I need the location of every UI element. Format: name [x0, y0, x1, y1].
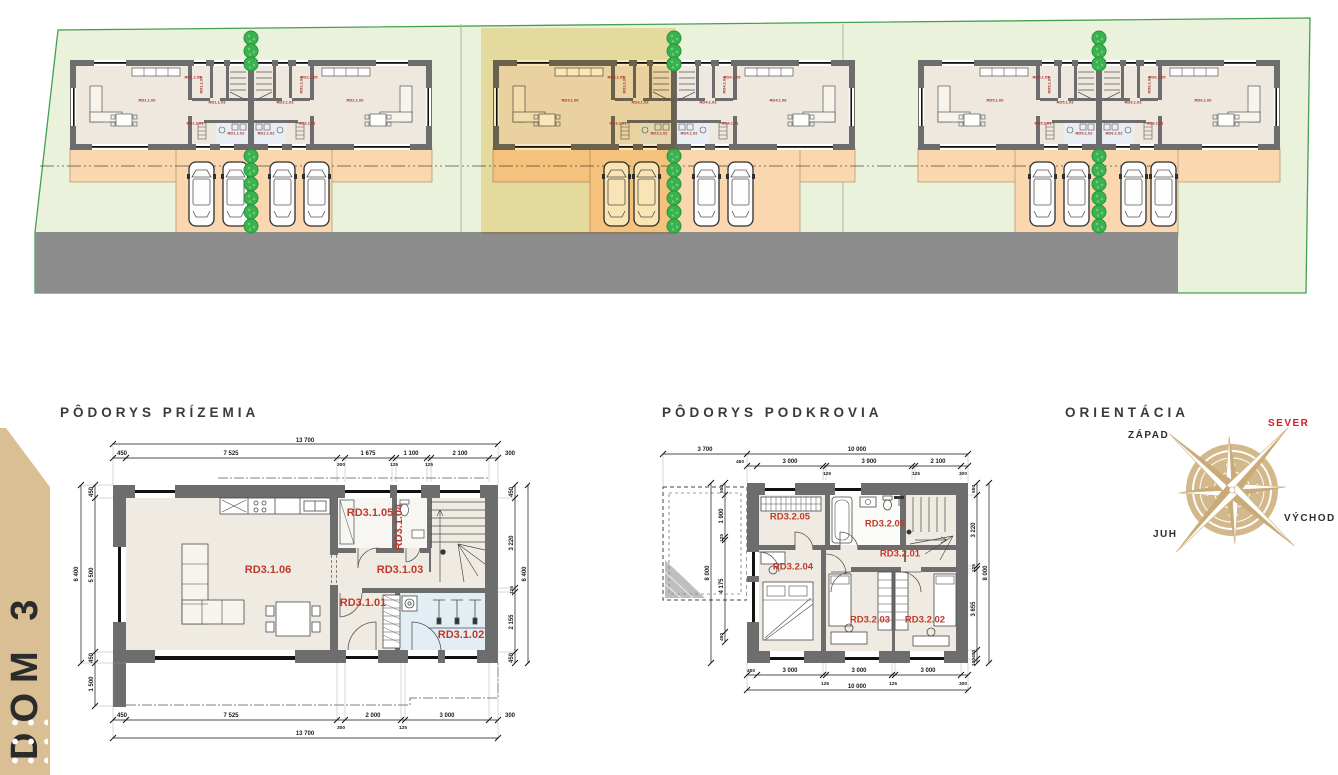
svg-text:2 000: 2 000: [365, 713, 381, 719]
svg-text:3 000: 3 000: [782, 459, 798, 465]
svg-text:550: 550: [971, 485, 977, 493]
building-1: [70, 60, 432, 150]
room-label-rd3205: RD3.2.05: [770, 512, 810, 523]
compass-label-north: SEVER: [1268, 418, 1309, 429]
svg-text:450: 450: [117, 451, 128, 457]
svg-text:3 700: 3 700: [697, 447, 713, 453]
terrace: [663, 487, 747, 600]
svg-text:1 900: 1 900: [719, 508, 725, 524]
attic-title: PÔDORYS PODKROVIA: [662, 405, 883, 420]
svg-text:450: 450: [89, 652, 95, 663]
svg-text:125: 125: [912, 471, 920, 477]
svg-text:3 000: 3 000: [782, 668, 798, 674]
svg-text:8 000: 8 000: [705, 565, 711, 581]
svg-text:8 000: 8 000: [983, 565, 989, 581]
svg-text:13 700: 13 700: [296, 438, 315, 444]
terrace-outline: [126, 663, 498, 705]
svg-text:125: 125: [425, 462, 433, 468]
room-label-rd3104: RD3.1.04: [393, 504, 405, 550]
svg-text:2 100: 2 100: [930, 459, 946, 465]
room-label-rd3201: RD3.2.01: [880, 549, 920, 560]
svg-text:125: 125: [719, 534, 725, 542]
svg-text:450: 450: [89, 486, 95, 497]
svg-text:125: 125: [821, 681, 829, 687]
svg-text:300: 300: [959, 681, 967, 687]
svg-text:125: 125: [509, 586, 515, 594]
site-plan: [0, 0, 1338, 300]
room-label-rd3106: RD3.1.06: [245, 564, 291, 576]
svg-text:450: 450: [509, 652, 515, 663]
svg-text:2 100: 2 100: [452, 451, 468, 457]
room-label-rd3105: RD3.1.05: [347, 507, 393, 519]
svg-text:125: 125: [889, 681, 897, 687]
svg-text:1 100: 1 100: [403, 451, 419, 457]
svg-text:10 000: 10 000: [848, 684, 867, 690]
building-3: [918, 60, 1280, 150]
svg-text:550: 550: [719, 485, 725, 493]
svg-text:100: 100: [971, 658, 977, 666]
svg-text:450: 450: [736, 459, 744, 465]
svg-text:3 220: 3 220: [971, 522, 977, 538]
ground-floor-plan: 13 700 450 7 525 1 675 1 100 2 100 300 3…: [60, 432, 530, 762]
room-label-rd3101: RD3.1.01: [340, 597, 386, 609]
dom3-banner: DOM 3: [0, 428, 50, 775]
svg-text:125: 125: [399, 725, 407, 731]
svg-text:300: 300: [505, 451, 516, 457]
ground-floor-title: PÔDORYS PRÍZEMIA: [60, 405, 259, 420]
page: RD1.1.06RD1.1.05RD1.1.04RD1.1.03RD1.1.01…: [0, 0, 1338, 775]
compass: [1070, 418, 1330, 568]
attic-floor-plan: 3 700 10 000 450 3 000 125 3 900 125 2 1…: [655, 432, 1035, 732]
room-label-rd3206: RD3.2.06: [865, 519, 905, 530]
svg-text:450: 450: [117, 713, 128, 719]
svg-text:3 000: 3 000: [439, 713, 455, 719]
svg-text:1 500: 1 500: [89, 676, 95, 692]
svg-text:2 155: 2 155: [509, 614, 515, 630]
svg-text:300: 300: [505, 713, 516, 719]
svg-text:5 500: 5 500: [89, 567, 95, 583]
svg-text:13 700: 13 700: [296, 731, 315, 737]
svg-text:3 000: 3 000: [851, 668, 867, 674]
svg-text:4 175: 4 175: [719, 578, 725, 594]
svg-text:300: 300: [337, 462, 345, 468]
compass-label-west: ZÁPAD: [1128, 430, 1169, 441]
compass-label-south: JUH: [1153, 529, 1178, 540]
svg-text:450: 450: [509, 486, 515, 497]
room-label-rd3202: RD3.2.02: [905, 615, 945, 626]
svg-text:450: 450: [719, 633, 725, 641]
svg-text:400: 400: [971, 650, 977, 658]
highlight-dom3: [481, 28, 676, 234]
road: [35, 232, 1178, 293]
svg-text:125: 125: [390, 462, 398, 468]
svg-text:1 675: 1 675: [360, 451, 376, 457]
svg-text:300: 300: [959, 471, 967, 477]
room-label-rd3102: RD3.1.02: [438, 629, 484, 641]
svg-text:125: 125: [823, 471, 831, 477]
svg-text:450: 450: [747, 668, 755, 674]
svg-text:125: 125: [971, 564, 977, 572]
svg-text:3 900: 3 900: [861, 459, 877, 465]
closet: [761, 497, 821, 511]
room-label-rd3204: RD3.2.04: [773, 562, 813, 573]
dom3-banner-dots: [2, 707, 48, 775]
svg-text:6 400: 6 400: [522, 566, 528, 582]
svg-text:3 220: 3 220: [509, 535, 515, 551]
room-label-rd3103: RD3.1.03: [377, 564, 423, 576]
compass-label-east: VÝCHOD: [1284, 513, 1336, 524]
svg-text:300: 300: [337, 725, 345, 731]
svg-text:6 400: 6 400: [74, 566, 80, 582]
svg-text:7 525: 7 525: [223, 713, 239, 719]
svg-text:7 525: 7 525: [223, 451, 239, 457]
svg-text:3 655: 3 655: [971, 601, 977, 617]
svg-text:3 000: 3 000: [920, 668, 936, 674]
room-label-rd3203: RD3.2.03: [850, 615, 890, 626]
svg-text:10 000: 10 000: [848, 447, 867, 453]
kitchen: [220, 498, 330, 514]
